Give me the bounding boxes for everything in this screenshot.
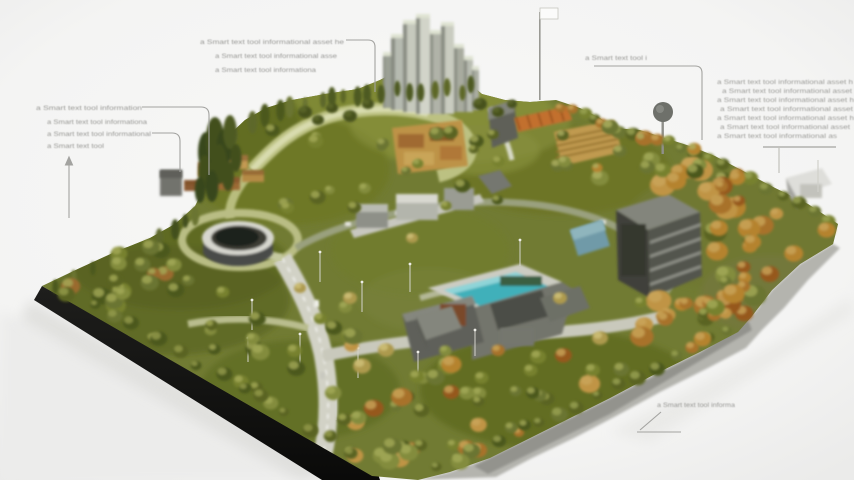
- svg-text:a Smart text tool informationa: a Smart text tool informational as: [717, 133, 838, 140]
- svg-text:a Smart text tool information: a Smart text tool information: [36, 105, 142, 112]
- svg-text:a Smart text tool i: a Smart text tool i: [585, 55, 647, 62]
- svg-text:a Smart text tool informationa: a Smart text tool informational asset: [722, 88, 852, 95]
- svg-text:a Smart text tool informationa: a Smart text tool informational asset h: [717, 79, 853, 86]
- svg-text:a Smart text tool informationa: a Smart text tool informational asset: [720, 124, 850, 131]
- svg-text:a Smart text tool informationa: a Smart text tool informational: [47, 131, 151, 138]
- svg-text:a Smart text tool informationa: a Smart text tool informational asset: [720, 106, 853, 113]
- svg-text:a Smart text tool: a Smart text tool: [47, 143, 104, 150]
- svg-text:a Smart text tool informationa: a Smart text tool informationa: [47, 119, 148, 126]
- svg-text:a Smart text tool informationa: a Smart text tool informational asset he: [200, 39, 344, 46]
- svg-text:a Smart text tool informationa: a Smart text tool informational asset h: [717, 97, 854, 104]
- svg-text:a Smart text tool informationa: a Smart text tool informationa: [215, 67, 317, 74]
- svg-text:a Smart text tool informa: a Smart text tool informa: [657, 403, 736, 409]
- svg-text:a Smart text tool informationa: a Smart text tool informational asse: [215, 53, 338, 60]
- svg-text:a Smart text tool informationa: a Smart text tool informational asset h: [717, 115, 854, 122]
